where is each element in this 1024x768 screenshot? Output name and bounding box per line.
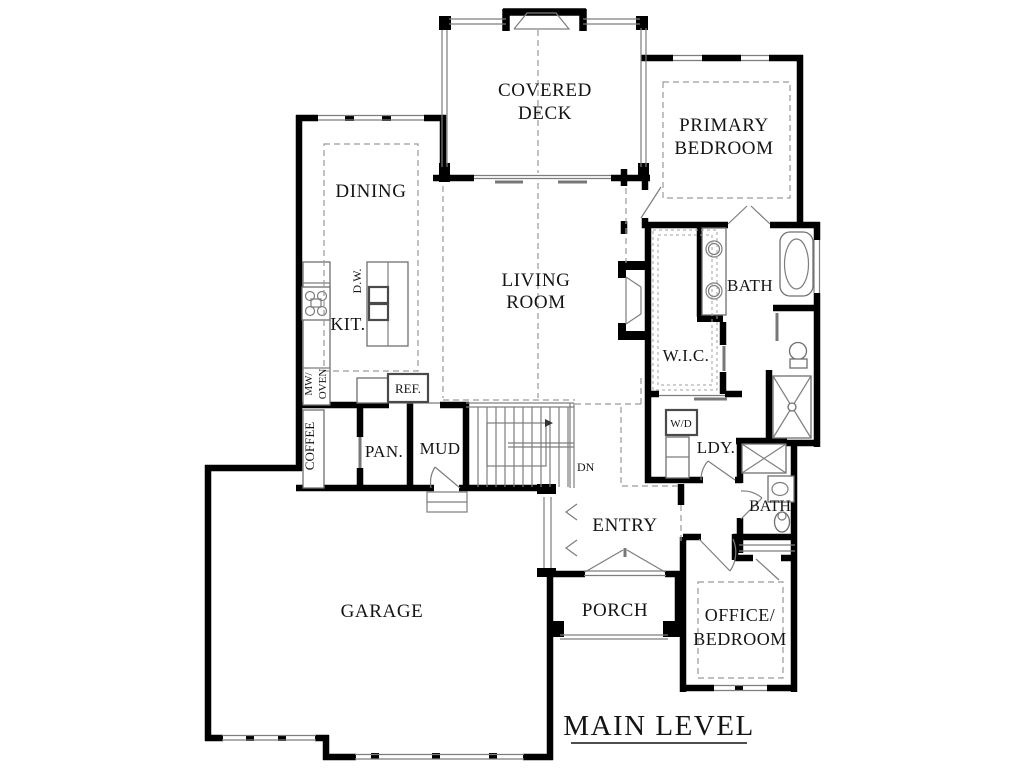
room-label-covered-deck-2: DECK <box>518 103 572 124</box>
plan-title: MAIN LEVEL <box>563 710 754 742</box>
fixture-label-microwave: MW/ <box>303 371 315 395</box>
room-label-hall-bath: BATH <box>749 498 791 515</box>
fixture-label-dishwasher: D.W. <box>350 269 364 294</box>
stairs <box>466 403 574 488</box>
floor-plan-page: COVERED DECK PRIMARY BEDROOM DINING LIVI… <box>0 0 1024 768</box>
fixture-label-ref: REF. <box>395 381 421 396</box>
labels: COVERED DECK PRIMARY BEDROOM DINING LIVI… <box>302 80 791 743</box>
stairs-arrow <box>545 419 553 427</box>
floor-plan: COVERED DECK PRIMARY BEDROOM DINING LIVI… <box>0 0 1024 768</box>
fixture-label-washer-dryer: W/D <box>670 418 691 430</box>
kitchen-island <box>367 262 408 346</box>
room-label-primary-bedroom-2: BEDROOM <box>674 138 773 159</box>
room-label-laundry: LDY. <box>697 438 736 457</box>
fixture-label-oven: OVEN <box>317 369 329 400</box>
room-label-primary-bedroom-1: PRIMARY <box>679 115 769 136</box>
toilet-hall-bath <box>775 512 790 532</box>
room-label-kitchen: KIT. <box>330 314 365 334</box>
hall-bath-door <box>741 491 762 498</box>
room-label-mud: MUD <box>420 439 461 458</box>
room-label-porch: PORCH <box>582 600 648 621</box>
room-label-office-1: OFFICE/ <box>705 605 776 625</box>
room-label-entry: ENTRY <box>592 515 657 536</box>
room-label-living-1: LIVING <box>501 270 570 291</box>
toilet-primary <box>790 343 808 369</box>
fixture-label-coffee: COFFEE <box>302 422 317 470</box>
shower-hall-bath <box>742 444 786 473</box>
island-sink <box>369 287 388 303</box>
office-closet <box>739 545 795 580</box>
room-label-living-2: ROOM <box>506 292 565 313</box>
tub <box>780 232 813 296</box>
room-label-covered-deck-1: COVERED <box>498 80 592 101</box>
cooktop <box>302 287 330 320</box>
room-label-dining: DINING <box>335 181 406 202</box>
room-label-pantry: PAN. <box>365 442 403 461</box>
stairs-dn-label: DN <box>577 460 595 474</box>
room-label-office-2: BEDROOM <box>693 629 787 649</box>
room-label-garage: GARAGE <box>341 601 424 622</box>
fireplace <box>618 261 648 340</box>
room-label-primary-bath: BATH <box>727 276 773 295</box>
vanity-double-sink <box>702 228 726 315</box>
shower-primary <box>773 376 811 438</box>
room-label-wic: W.I.C. <box>663 346 710 365</box>
bedroom-door <box>641 187 661 218</box>
